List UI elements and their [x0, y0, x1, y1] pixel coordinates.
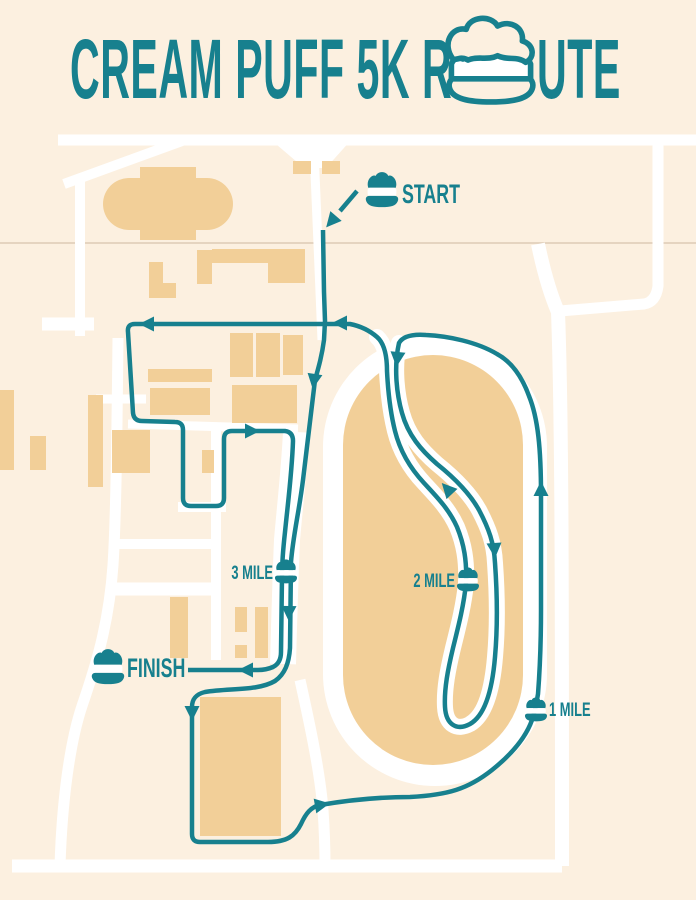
title-cream-puff-icon — [448, 18, 533, 102]
map-canvas: START FINISH 1 MILE 2 MILE 3 MILE CREAM … — [0, 0, 696, 900]
title-text-after: UTE — [537, 23, 621, 117]
mile-3-label: 3 MILE — [231, 563, 273, 584]
racetrack — [323, 335, 547, 786]
mile-1-label: 1 MILE — [549, 700, 591, 721]
start-puff-icon — [366, 172, 398, 207]
route-map-page: START FINISH 1 MILE 2 MILE 3 MILE CREAM … — [0, 0, 696, 900]
title-text-before: CREAM PUFF 5K R — [70, 23, 452, 117]
finish-label: FINISH — [127, 652, 185, 683]
mile-2-puff-icon — [457, 568, 479, 592]
mile-2-label: 2 MILE — [413, 571, 455, 592]
finish-puff-icon — [92, 649, 124, 684]
mile-1-puff-icon — [525, 698, 547, 722]
page-title: CREAM PUFF 5K R UTE — [70, 18, 621, 117]
mile-3-puff-icon — [275, 560, 297, 584]
start-label: START — [402, 178, 460, 209]
